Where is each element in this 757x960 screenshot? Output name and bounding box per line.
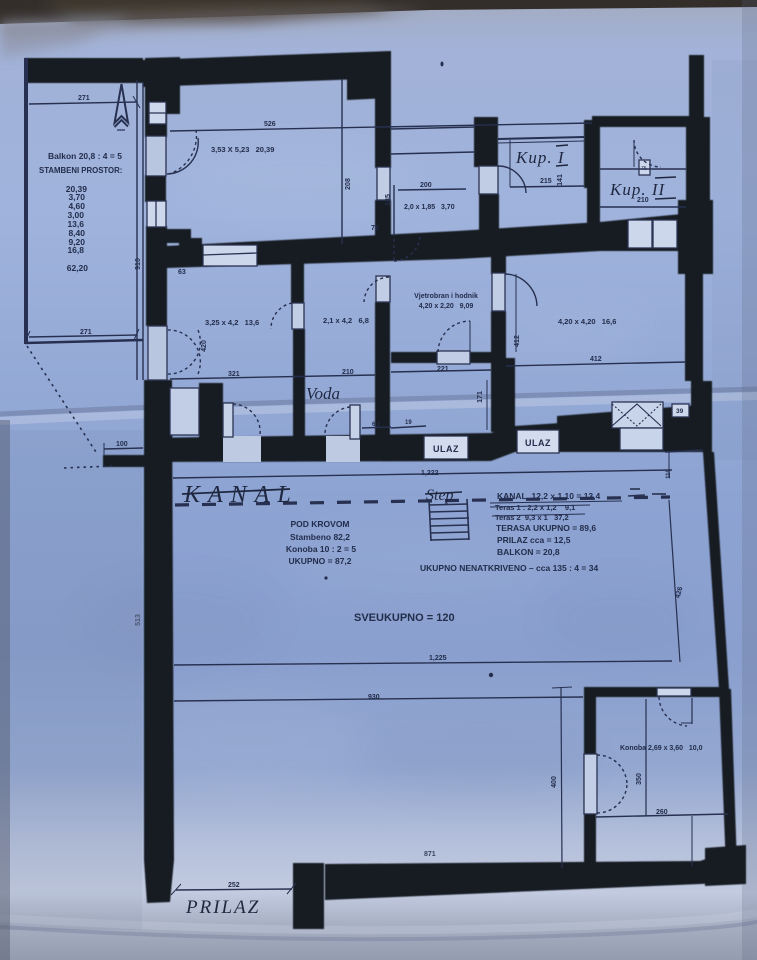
svg-text:215: 215 [540, 178, 552, 185]
svg-text:UKUPNO NENATKRIVENO – cca 135: UKUPNO NENATKRIVENO – cca 135 : 4 = 34 [420, 563, 598, 573]
svg-text:871: 871 [424, 851, 436, 858]
svg-text:PRILAZ cca = 12,5: PRILAZ cca = 12,5 [497, 535, 571, 545]
svg-text:350: 350 [636, 773, 643, 785]
svg-text:4,20 x 4,20 16,6: 4,20 x 4,20 16,6 [558, 317, 616, 326]
svg-text:75: 75 [641, 166, 647, 172]
svg-text:16,8: 16,8 [67, 245, 84, 255]
svg-text:19: 19 [405, 420, 412, 426]
svg-text:2,0 x 1,85 3,70: 2,0 x 1,85 3,70 [404, 204, 455, 211]
svg-text:271: 271 [80, 329, 92, 336]
svg-text:200: 200 [420, 182, 432, 189]
svg-text:Teras 1 : 2,2 x 1,2 9,1: Teras 1 : 2,2 x 1,2 9,1 [495, 503, 575, 512]
svg-text:SVEUKUPNO = 120: SVEUKUPNO = 120 [354, 612, 455, 624]
svg-text:TERASA UKUPNO = 89,6: TERASA UKUPNO = 89,6 [496, 523, 596, 533]
svg-text:PRILAZ: PRILAZ [185, 897, 260, 918]
svg-text:62,20: 62,20 [67, 263, 89, 273]
svg-text:141: 141 [557, 174, 564, 186]
svg-text:Konoba 10 : 2 = 5: Konoba 10 : 2 = 5 [286, 544, 356, 554]
svg-text:Vjetrobran i hodnik: Vjetrobran i hodnik [414, 293, 478, 300]
svg-text:STAMBENI PROSTOR:: STAMBENI PROSTOR: [39, 166, 122, 175]
svg-text:Balkon 20,8 : 4 = 5: Balkon 20,8 : 4 = 5 [48, 151, 122, 161]
svg-text:252: 252 [228, 882, 240, 889]
svg-text:513: 513 [135, 614, 142, 626]
svg-text:75: 75 [371, 225, 379, 232]
svg-text:420: 420 [201, 340, 208, 352]
svg-text:1,222: 1,222 [421, 470, 439, 477]
svg-text:6,1: 6,1 [372, 422, 381, 428]
svg-text:KANAL: KANAL [183, 482, 299, 508]
svg-text:Kup. II: Kup. II [609, 180, 666, 199]
svg-text:910: 910 [135, 258, 142, 270]
svg-text:100: 100 [116, 441, 128, 448]
svg-text:Stambeno 82,2: Stambeno 82,2 [290, 532, 350, 542]
svg-text:39: 39 [676, 408, 684, 415]
svg-text:221: 221 [437, 366, 449, 373]
svg-text:171: 171 [477, 391, 484, 403]
svg-text:Konoba 2,69 x 3,60 10,0: Konoba 2,69 x 3,60 10,0 [620, 745, 703, 752]
svg-text:BALKON = 20,8: BALKON = 20,8 [497, 547, 560, 557]
svg-text:185: 185 [385, 194, 392, 206]
svg-text:930: 930 [368, 694, 380, 701]
svg-text:321: 321 [228, 371, 240, 378]
svg-text:63: 63 [178, 269, 186, 276]
svg-text:Step: Step [426, 487, 454, 504]
svg-text:210: 210 [342, 369, 354, 376]
svg-text:208: 208 [345, 178, 352, 190]
svg-text:3,53 X 5,23 20,39: 3,53 X 5,23 20,39 [211, 145, 274, 154]
svg-text:110: 110 [666, 469, 672, 479]
svg-text:3,25 x 4,2 13,6: 3,25 x 4,2 13,6 [205, 318, 259, 327]
svg-text:2,1 x 4,2 6,8: 2,1 x 4,2 6,8 [323, 316, 369, 325]
svg-text:412: 412 [514, 335, 521, 347]
svg-text:ULAZ: ULAZ [525, 438, 551, 448]
svg-text:526: 526 [264, 121, 276, 128]
svg-text:4,20 x 2,20 9,09: 4,20 x 2,20 9,09 [419, 303, 474, 310]
svg-text:412: 412 [590, 356, 602, 363]
svg-text:1,225: 1,225 [429, 655, 447, 662]
svg-text:260: 260 [656, 809, 668, 816]
svg-text:POD KROVOM: POD KROVOM [290, 519, 349, 529]
svg-text:Voda: Voda [306, 384, 340, 403]
svg-text:400: 400 [551, 776, 558, 788]
svg-text:271: 271 [78, 95, 90, 102]
svg-text:UKUPNO = 87,2: UKUPNO = 87,2 [288, 556, 351, 566]
svg-text:KANAL 12,2 x 1,10 = 13,4: KANAL 12,2 x 1,10 = 13,4 [497, 491, 601, 501]
svg-text:Kup. I: Kup. I [515, 148, 565, 167]
